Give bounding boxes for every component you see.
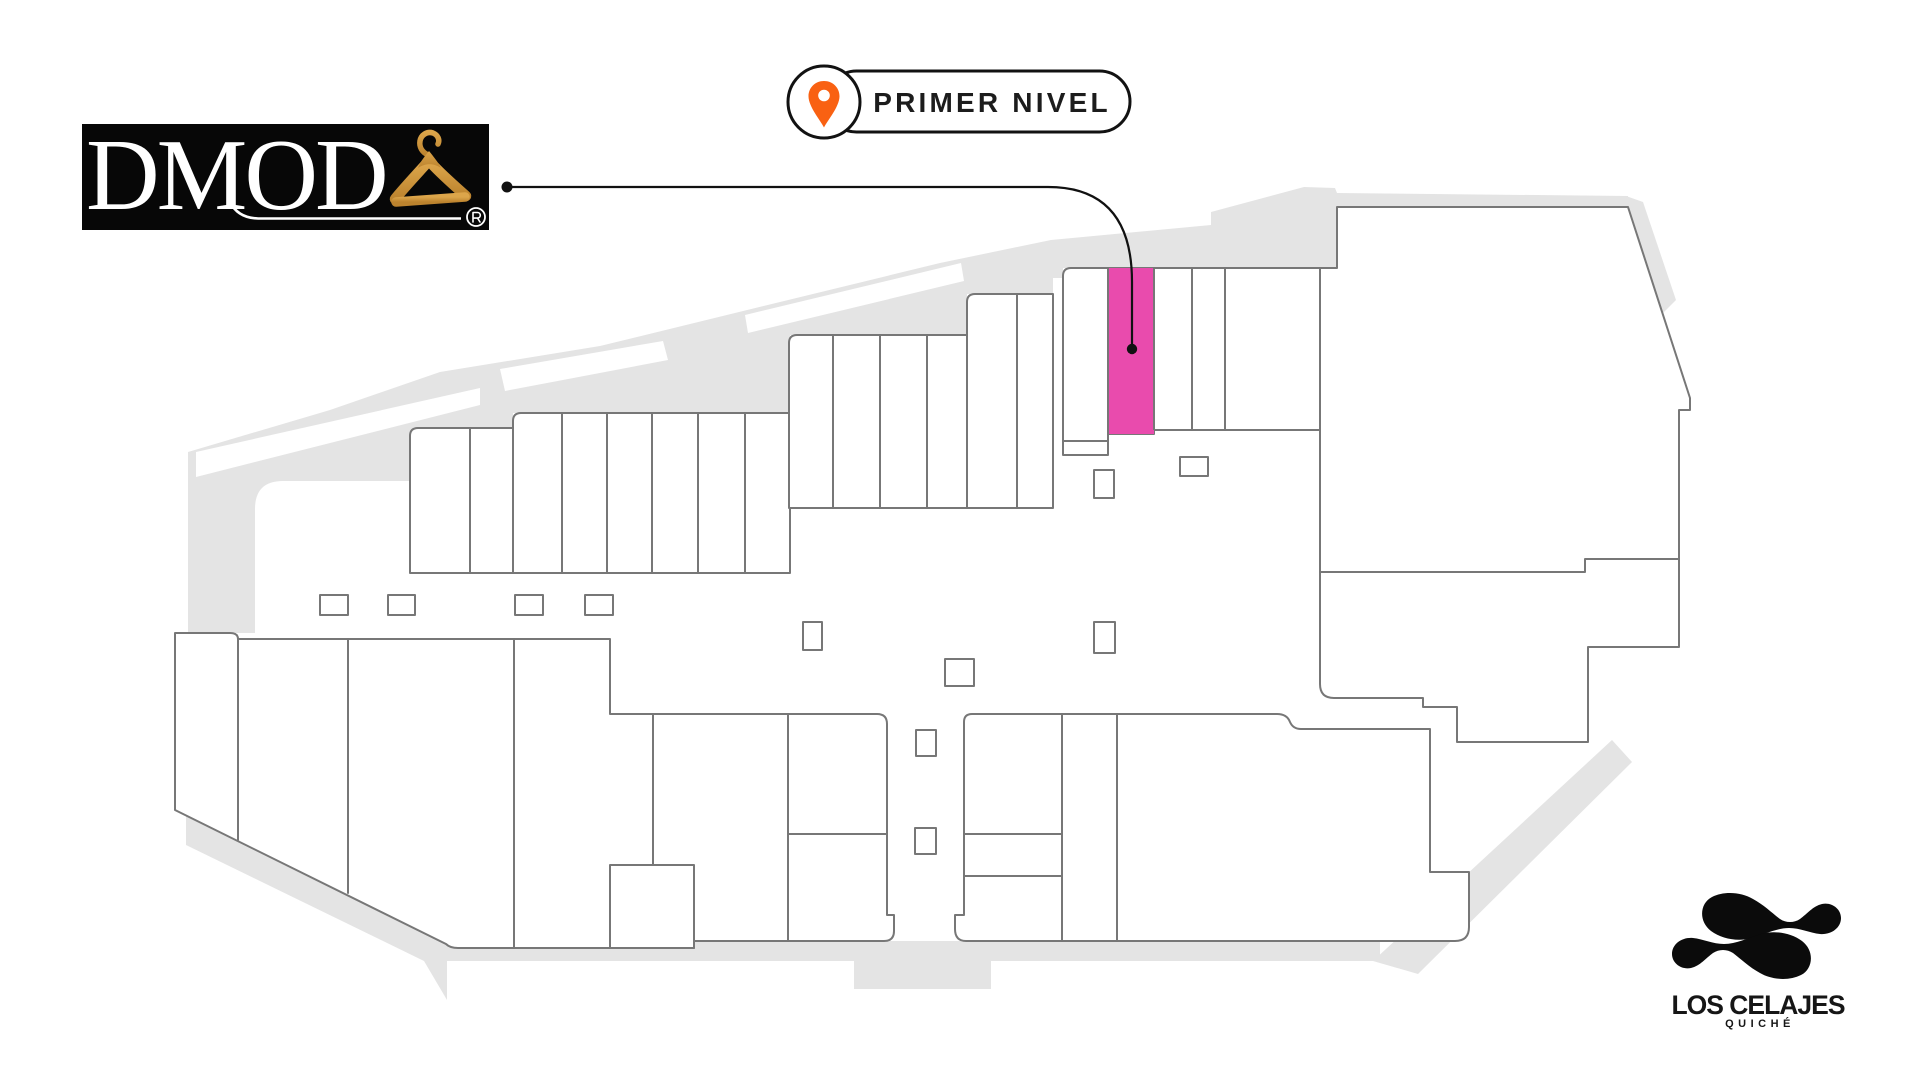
svg-text:LOS CELAJES: LOS CELAJES — [1671, 990, 1844, 1020]
svg-text:PRIMER NIVEL: PRIMER NIVEL — [873, 87, 1111, 118]
svg-text:DMOD: DMOD — [86, 119, 386, 232]
svg-text:QUICHÉ: QUICHÉ — [1725, 1017, 1795, 1030]
